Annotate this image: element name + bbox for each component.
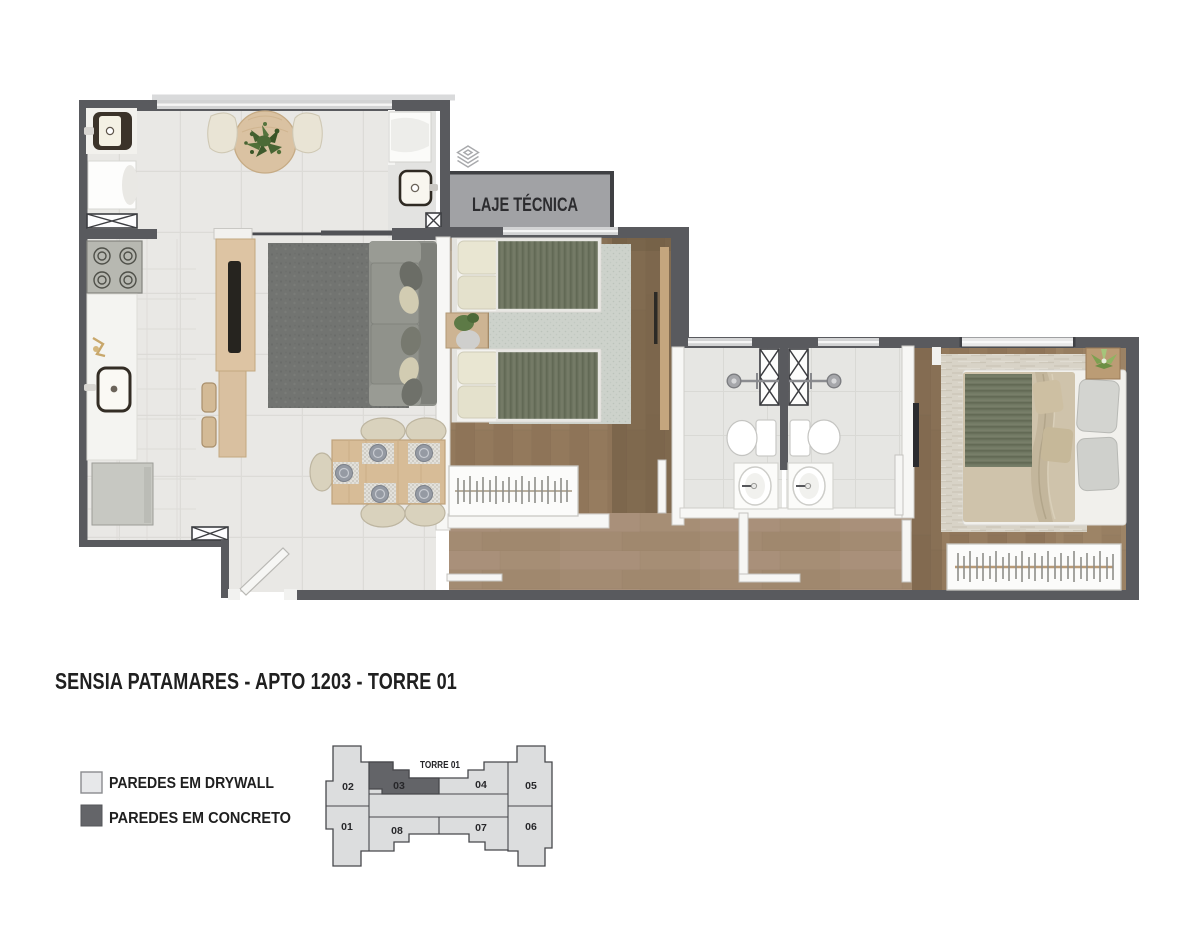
svg-text:05: 05	[525, 780, 537, 792]
svg-text:LAJE TÉCNICA: LAJE TÉCNICA	[472, 194, 578, 216]
svg-text:PAREDES EM CONCRETO: PAREDES EM CONCRETO	[109, 810, 291, 827]
svg-text:SENSIA PATAMARES - APTO 1203: SENSIA PATAMARES - APTO 1203 - TORRE 01	[55, 668, 457, 694]
svg-text:07: 07	[475, 822, 487, 834]
svg-text:08: 08	[391, 825, 403, 837]
svg-text:06: 06	[525, 821, 537, 833]
svg-text:01: 01	[341, 821, 353, 833]
svg-text:PAREDES EM DRYWALL: PAREDES EM DRYWALL	[109, 775, 274, 792]
svg-text:TORRE 01: TORRE 01	[420, 760, 460, 771]
svg-text:03: 03	[393, 780, 405, 792]
svg-text:04: 04	[475, 779, 487, 791]
svg-text:02: 02	[342, 781, 354, 793]
